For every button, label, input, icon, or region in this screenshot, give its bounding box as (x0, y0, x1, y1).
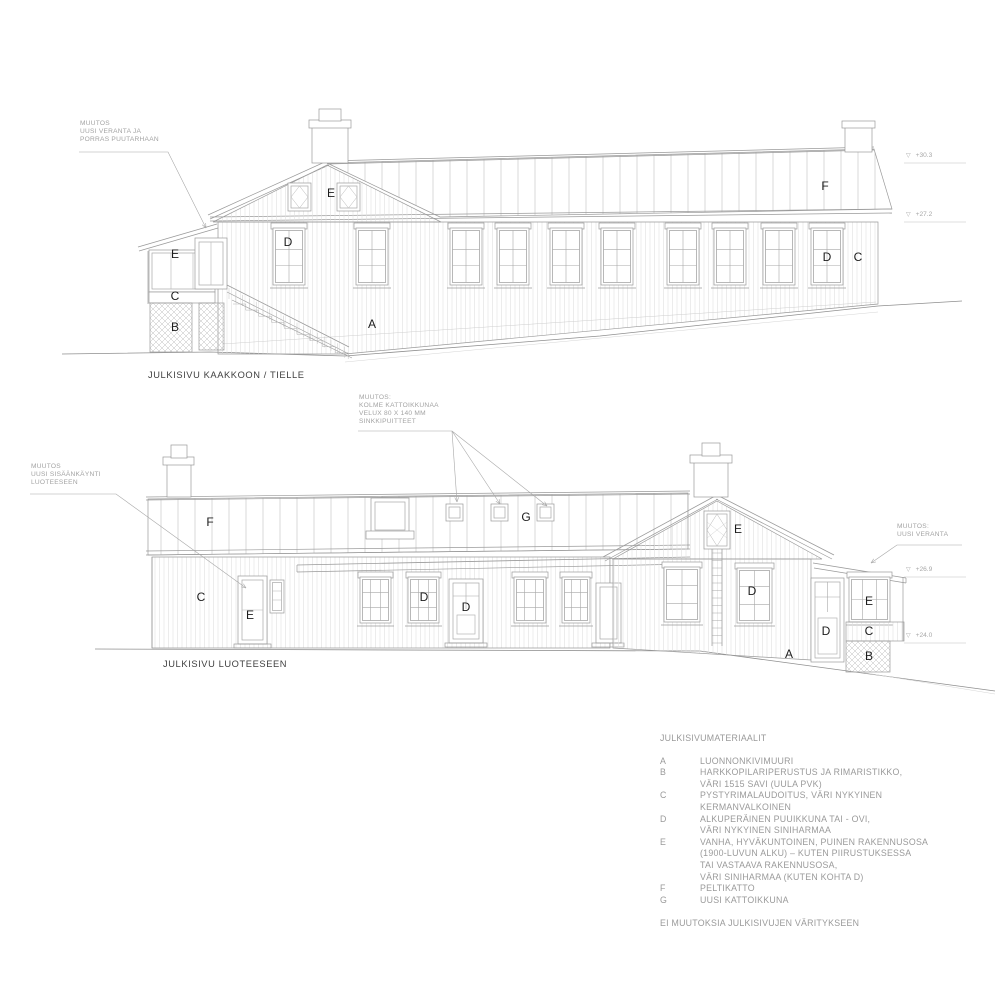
annotation-line: UUSI VERANTA (897, 531, 948, 539)
material-label-d-window2: D (420, 590, 429, 604)
legend-item-c: C PYSTYRIMALAUDOITUS, VÄRI NYKYINEN KERM… (660, 790, 970, 813)
material-label-c-right: C (854, 250, 863, 264)
annotation-line: MUUTOS: (359, 394, 439, 402)
annotation-line: MUUTOS (31, 463, 101, 471)
legend-line: UUSI KATTOIKKUNA (700, 895, 789, 907)
materials-legend: JULKISIVUMATERIAALIT A LUONNONKIVIMUURI … (660, 733, 970, 930)
material-label-c-wall2: C (197, 590, 206, 604)
annotation-new-entrance: MUUTOS UUSI SISÄÄNKÄYNTI LUOTEESEEN (31, 463, 101, 487)
legend-key: D (660, 814, 700, 837)
legend-item-b: B HARKKOPILARIPERUSTUS JA RIMARISTIKKO, … (660, 767, 970, 790)
legend-line: VÄRI 1515 SAVI (UULA PVK) (700, 779, 902, 791)
material-label-a-ground: A (368, 317, 376, 331)
legend-title: JULKISIVUMATERIAALIT (660, 733, 970, 745)
legend-line: ALKUPERÄINEN PUUIKKUNA TAI - OVI, (700, 814, 870, 826)
level-mark-eaves: ▽ +27.2 (906, 211, 932, 218)
material-label-a-ground2: A (785, 647, 793, 661)
legend-line: (1900-LUVUN ALKU) – KUTEN PIIRUSTUKSESSA (700, 848, 928, 860)
elevation-northwest (95, 443, 995, 694)
material-label-b-veranda2: B (865, 649, 873, 663)
material-label-e-gable: E (327, 186, 335, 200)
level-value: +26.9 (916, 566, 933, 573)
level-mark-icon: ▽ (906, 566, 911, 573)
legend-key: G (660, 895, 700, 907)
level-value: +27.2 (916, 211, 933, 218)
annotation-new-veranda: MUUTOS: UUSI VERANTA (897, 523, 948, 539)
legend-key: C (660, 790, 700, 813)
legend-key: E (660, 837, 700, 883)
annotation-line: SINKKIPUITTEET (359, 418, 439, 426)
elevation-southeast (62, 109, 962, 362)
legend-line: VÄRI SINIHARMAA (KUTEN KOHTA D) (700, 872, 928, 884)
material-label-e-veranda: E (171, 247, 179, 261)
level-value: +24.0 (916, 632, 933, 639)
material-label-c-veranda: C (171, 289, 180, 303)
legend-item-e: E VANHA, HYVÄKUNTOINEN, PUINEN RAKENNUSO… (660, 837, 970, 883)
material-label-d-verandadoor: D (822, 624, 831, 638)
material-label-e-door2: E (246, 608, 254, 622)
legend-line: PYSTYRIMALAUDOITUS, VÄRI NYKYINEN (700, 790, 882, 802)
material-label-c-veranda2: C (865, 624, 874, 638)
material-label-d-right: D (823, 250, 832, 264)
legend-key: A (660, 756, 700, 768)
annotation-roof-windows: MUUTOS: KOLME KATTOIKKUNAA VELUX 80 X 14… (359, 394, 439, 426)
material-label-b-base: B (171, 320, 179, 334)
legend-key: F (660, 883, 700, 895)
annotation-line: UUSI VERANTA JA (80, 128, 159, 136)
annotation-line: MUUTOS (80, 120, 159, 128)
level-mark-ridge: ▽ +30.3 (906, 152, 932, 159)
material-label-e-attic2: E (734, 522, 742, 536)
legend-item-f: F PELTIKATTO (660, 883, 970, 895)
legend-footer: EI MUUTOKSIA JULKISIVUJEN VÄRITYKSEEN (660, 918, 970, 930)
material-label-d-middoor: D (462, 600, 471, 614)
legend-line: HARKKOPILARIPERUSTUS JA RIMARISTIKKO, (700, 767, 902, 779)
level-mark-icon: ▽ (906, 211, 911, 218)
legend-line: VANHA, HYVÄKUNTOINEN, PUINEN RAKENNUSOSA (700, 837, 928, 849)
legend-item-d: D ALKUPERÄINEN PUUIKKUNA TAI - OVI, VÄRI… (660, 814, 970, 837)
annotation-line: PORRAS PUUTARHAAN (80, 136, 159, 144)
level-mark-veranda-base: ▽ +24.0 (906, 632, 932, 639)
level-mark-veranda-roof: ▽ +26.9 (906, 566, 932, 573)
annotation-line: VELUX 80 X 140 MM (359, 410, 439, 418)
level-value: +30.3 (916, 152, 933, 159)
material-label-f-roof: F (821, 179, 828, 193)
level-mark-icon: ▽ (906, 632, 911, 639)
material-label-f-roof2: F (206, 515, 213, 529)
caption-northwest: JULKISIVU LUOTEESEEN (163, 659, 287, 669)
material-label-d-gable: D (748, 584, 757, 598)
legend-line: LUONNONKIVIMUURI (700, 756, 793, 768)
legend-item-a: A LUONNONKIVIMUURI (660, 756, 970, 768)
drawing-sheet: E D E C B A F D C F C E G D D D E D E C … (0, 0, 1000, 1000)
material-label-g-roofwindow: G (521, 510, 530, 524)
legend-key: B (660, 767, 700, 790)
level-mark-icon: ▽ (906, 152, 911, 159)
material-label-e-verandawin: E (865, 594, 873, 608)
legend-line: VÄRI NYKYINEN SINIHARMAA (700, 825, 870, 837)
annotation-line: KOLME KATTOIKKUNAA (359, 402, 439, 410)
annotation-veranda-garden: MUUTOS UUSI VERANTA JA PORRAS PUUTARHAAN (80, 120, 159, 144)
caption-southeast: JULKISIVU KAAKKOON / TIELLE (148, 370, 305, 380)
material-label-d-window: D (284, 235, 293, 249)
legend-line: PELTIKATTO (700, 883, 755, 895)
annotation-line: UUSI SISÄÄNKÄYNTI (31, 471, 101, 479)
legend-item-g: G UUSI KATTOIKKUNA (660, 895, 970, 907)
annotation-line: MUUTOS: (897, 523, 948, 531)
legend-line: KERMANVALKOINEN (700, 802, 882, 814)
annotation-line: LUOTEESEEN (31, 479, 101, 487)
legend-line: TAI VASTAAVA RAKENNUSOSA, (700, 860, 928, 872)
